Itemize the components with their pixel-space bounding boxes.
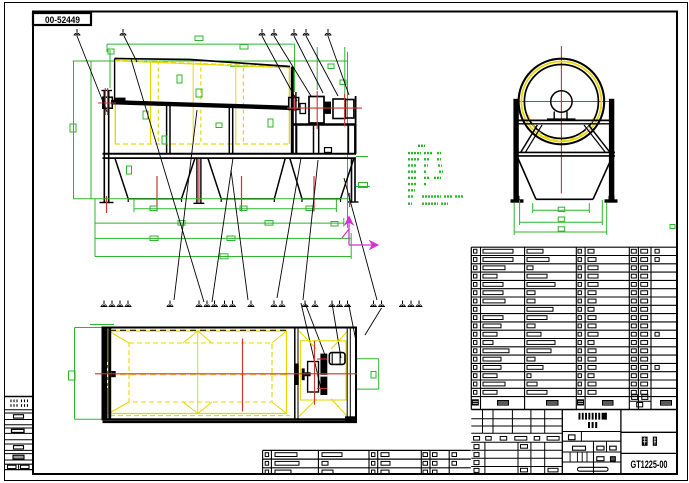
- svg-text:00-52449: 00-52449: [45, 15, 80, 25]
- svg-text:GT1225-00: GT1225-00: [631, 459, 668, 471]
